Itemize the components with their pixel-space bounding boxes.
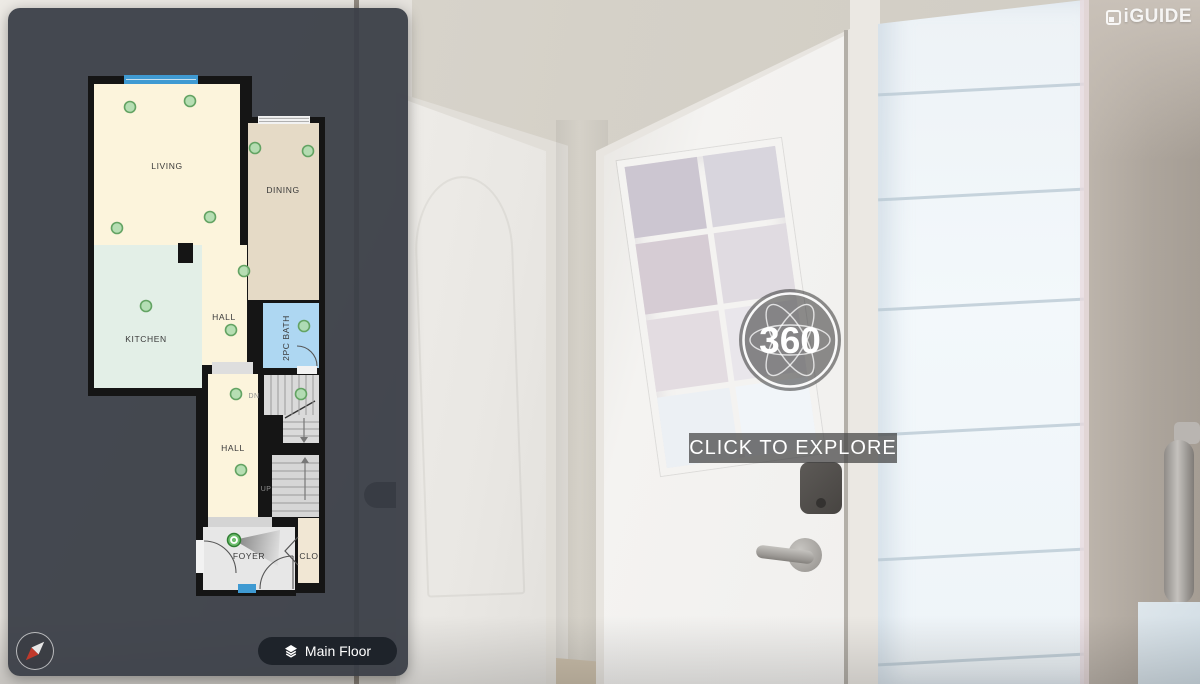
iguide-logo-text: iGUIDE: [1124, 6, 1192, 28]
badge-360[interactable]: 360: [738, 288, 842, 392]
pano-marker[interactable]: [205, 212, 216, 223]
badge-360-label: 360: [759, 320, 821, 361]
pano-marker[interactable]: [250, 143, 261, 154]
floorplan-panel: LIVING DINING KITCHEN HALL 2PC BATH HALL…: [8, 8, 408, 676]
label-closet: CLO: [299, 551, 318, 561]
pano-marker[interactable]: [141, 301, 152, 312]
wall-stub: [178, 243, 193, 263]
room-hall-upper: [202, 245, 247, 365]
bath-door-opening: [297, 366, 317, 374]
pano-marker[interactable]: [299, 321, 310, 332]
label-kitchen: KITCHEN: [125, 334, 167, 344]
pano-marker[interactable]: [231, 389, 242, 400]
label-hall-lower: HALL: [221, 443, 245, 453]
pano-marker[interactable]: [226, 325, 237, 336]
floor-selector-label: Main Floor: [305, 643, 371, 659]
room-bath: [263, 303, 319, 368]
floor-selector-button[interactable]: Main Floor: [258, 637, 397, 665]
pano-marker[interactable]: [303, 146, 314, 157]
pano-marker[interactable]: [185, 96, 196, 107]
iguide-viewer: 360 CLICK TO EXPLORE iGUIDE: [0, 0, 1200, 684]
compass-button[interactable]: [16, 632, 54, 670]
pano-marker[interactable]: [125, 102, 136, 113]
label-dining: DINING: [266, 185, 299, 195]
pano-marker[interactable]: [239, 266, 250, 277]
pano-marker[interactable]: [296, 389, 307, 400]
room-kitchen: [94, 245, 202, 388]
entry-door-marker: [238, 584, 256, 593]
iguide-logo: iGUIDE: [1106, 6, 1192, 28]
layers-icon: [284, 644, 298, 658]
stair-divider: [264, 443, 319, 455]
compass-needle-icon: [22, 638, 47, 663]
floorplan[interactable]: LIVING DINING KITCHEN HALL 2PC BATH HALL…: [82, 70, 332, 600]
label-up: UP: [261, 486, 272, 493]
pano-marker[interactable]: [112, 223, 123, 234]
stairs-up: [272, 455, 319, 517]
foyer-door-opening: [196, 540, 204, 573]
label-bath: 2PC BATH: [281, 315, 291, 361]
doorway-sill: [212, 362, 253, 374]
pano-marker[interactable]: [236, 465, 247, 476]
cta-label: CLICK TO EXPLORE: [689, 437, 897, 460]
active-pano-marker: [228, 534, 241, 547]
label-living: LIVING: [151, 161, 182, 171]
iguide-logo-icon: [1106, 10, 1121, 25]
label-hall-upper: HALL: [212, 312, 236, 322]
foyer-step: [208, 517, 272, 527]
label-dn: DN: [249, 393, 260, 400]
cta-bar[interactable]: CLICK TO EXPLORE: [689, 433, 897, 463]
dining-window: [258, 116, 310, 124]
